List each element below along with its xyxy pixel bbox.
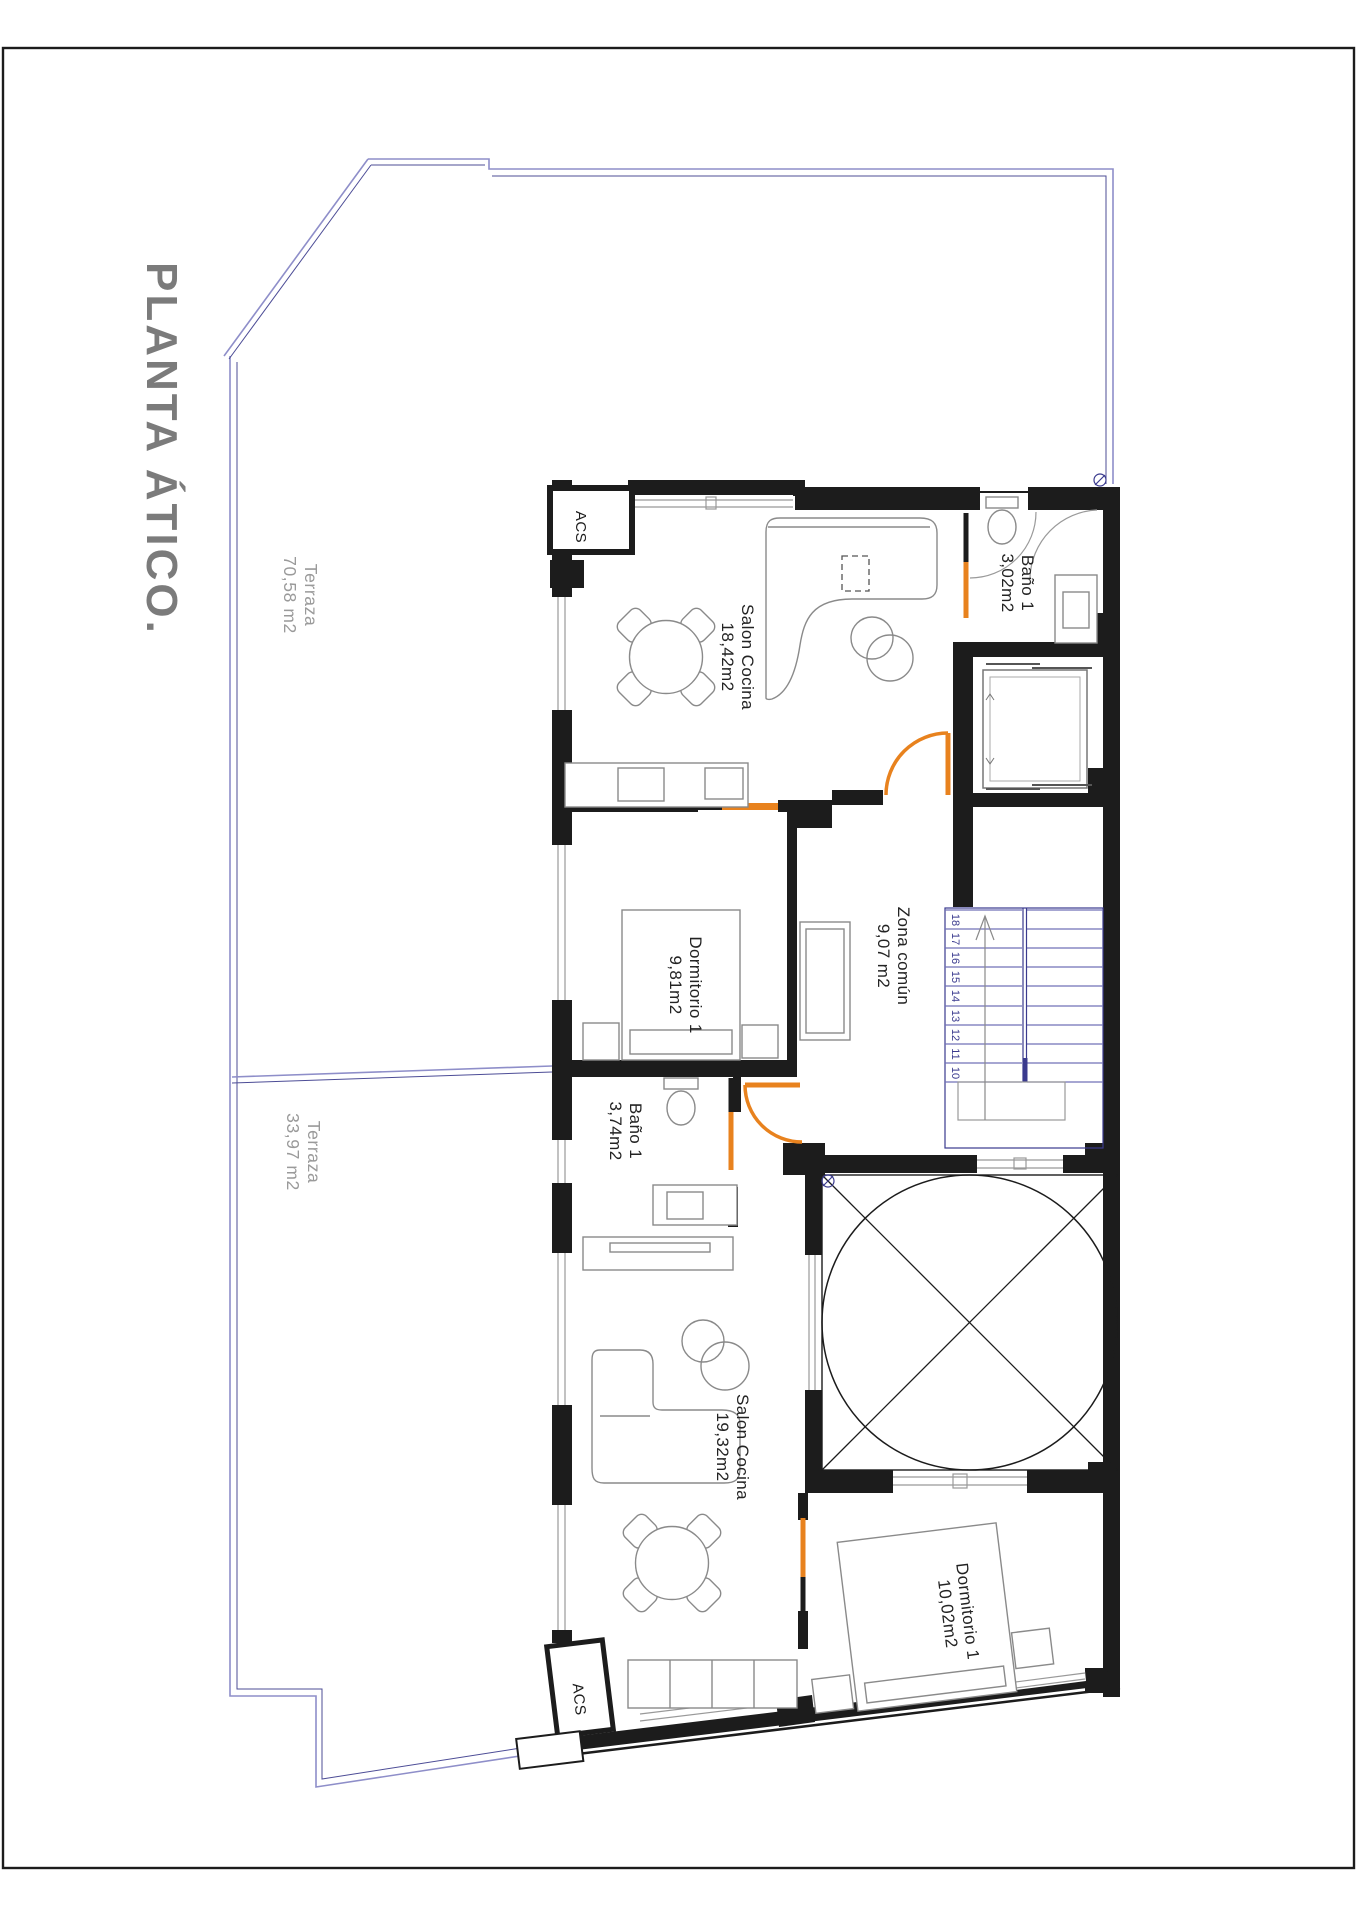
page-title: PLANTA ÁTICO. [137, 262, 187, 636]
acs-closet-bottom: ACS [516, 1640, 613, 1769]
svg-text:Baño 1: Baño 1 [1018, 555, 1037, 611]
shower-a [1055, 575, 1097, 643]
toilet-b [664, 1078, 698, 1125]
svg-text:9,81m2: 9,81m2 [666, 955, 685, 1014]
step-18: 18 [949, 914, 961, 926]
drain-icon [822, 1175, 834, 1187]
label-zona-comun: Zona común 9,07 m2 [874, 907, 913, 1006]
svg-text:18,42m2: 18,42m2 [718, 623, 737, 692]
step-16: 16 [949, 952, 961, 964]
staircase: 18 17 16 15 14 13 12 11 10 [945, 908, 1103, 1148]
svg-text:Salon Cocina: Salon Cocina [738, 604, 757, 710]
svg-text:Salon Cocina: Salon Cocina [733, 1394, 752, 1500]
acs-bottom-label: ACS [569, 1682, 589, 1716]
label-salon-a: Salon Cocina 18,42m2 [718, 604, 757, 710]
stair-landing [958, 1082, 1065, 1120]
svg-text:9,07 m2: 9,07 m2 [874, 924, 893, 988]
dining-table-b [590, 1481, 754, 1645]
svg-text:70,58 m2: 70,58 m2 [280, 556, 300, 634]
wardrobe-a [800, 922, 850, 1040]
label-bano-b: Baño 1 3,74m2 [606, 1101, 645, 1160]
elevator [983, 664, 1092, 789]
floor-plan-svg: PLANTA ÁTICO. [0, 0, 1357, 1920]
step-15: 15 [949, 971, 961, 983]
svg-text:3,02m2: 3,02m2 [998, 553, 1017, 612]
step-11: 11 [949, 1048, 961, 1059]
sofa-a [766, 518, 937, 699]
terrace-divider [232, 1066, 552, 1077]
shower-b [653, 1185, 737, 1225]
kitchen-b [628, 1660, 797, 1708]
label-terraza-b: Terraza 33,97 m2 [283, 1113, 324, 1191]
step-17: 17 [949, 933, 961, 945]
kitchen-a [565, 763, 748, 807]
svg-text:Terraza: Terraza [301, 564, 321, 627]
stair-step-numbers: 18 17 16 15 14 13 12 11 10 [949, 914, 961, 1079]
step-13: 13 [949, 1010, 961, 1022]
acs-top-label: ACS [572, 511, 589, 543]
drain-icon [1094, 474, 1106, 486]
svg-text:Terraza: Terraza [304, 1121, 324, 1184]
sideboard-b [583, 1237, 733, 1270]
svg-text:Baño 1: Baño 1 [626, 1103, 645, 1159]
svg-text:Dormitorio 1: Dormitorio 1 [686, 936, 705, 1033]
plant-a [851, 617, 893, 659]
acs-closet-top: ACS [550, 488, 632, 588]
label-bano-a: Baño 1 3,02m2 [998, 553, 1037, 612]
svg-text:33,97 m2: 33,97 m2 [283, 1113, 303, 1191]
room-labels: Salon Cocina 18,42m2 Baño 1 3,02m2 Dormi… [280, 553, 1037, 1663]
step-14: 14 [949, 990, 961, 1002]
svg-text:Zona común: Zona común [894, 907, 913, 1006]
tv-a [842, 556, 869, 591]
label-terraza-a: Terraza 70,58 m2 [280, 556, 321, 634]
page-title-text: PLANTA ÁTICO. [137, 262, 187, 636]
toilet-a [986, 497, 1018, 544]
drawing-sheet: PLANTA ÁTICO. [0, 0, 1357, 1920]
svg-text:19,32m2: 19,32m2 [713, 1413, 732, 1482]
step-12: 12 [949, 1029, 961, 1041]
step-10: 10 [949, 1067, 961, 1079]
svg-text:3,74m2: 3,74m2 [606, 1101, 625, 1160]
